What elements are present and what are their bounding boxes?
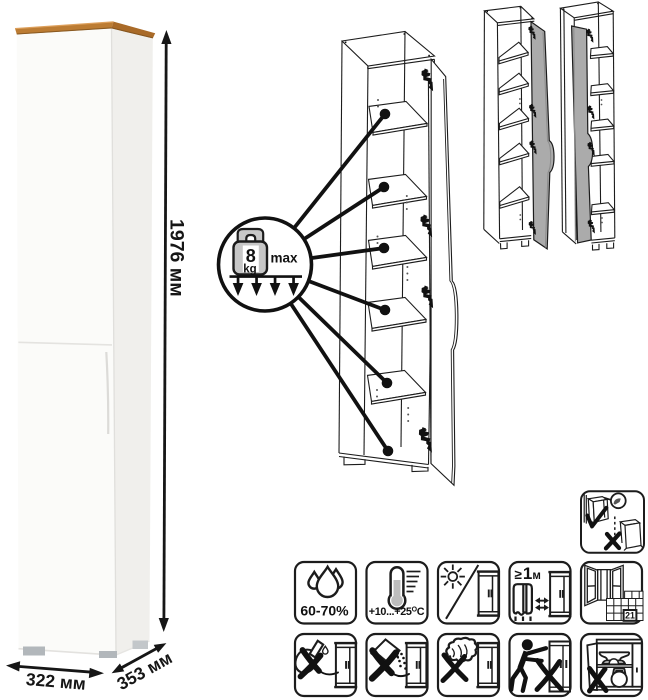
svg-text:max: max	[271, 251, 299, 266]
svg-text:21: 21	[625, 611, 635, 621]
svg-text:1976 мм: 1976 мм	[166, 219, 188, 297]
svg-text:60-70%: 60-70%	[300, 603, 349, 619]
svg-text:≥1м: ≥1м	[515, 564, 541, 583]
svg-text:kg: kg	[243, 264, 256, 276]
svg-text:322 мм: 322 мм	[25, 669, 86, 694]
svg-text:+10...+25OC: +10...+25OC	[369, 606, 425, 618]
